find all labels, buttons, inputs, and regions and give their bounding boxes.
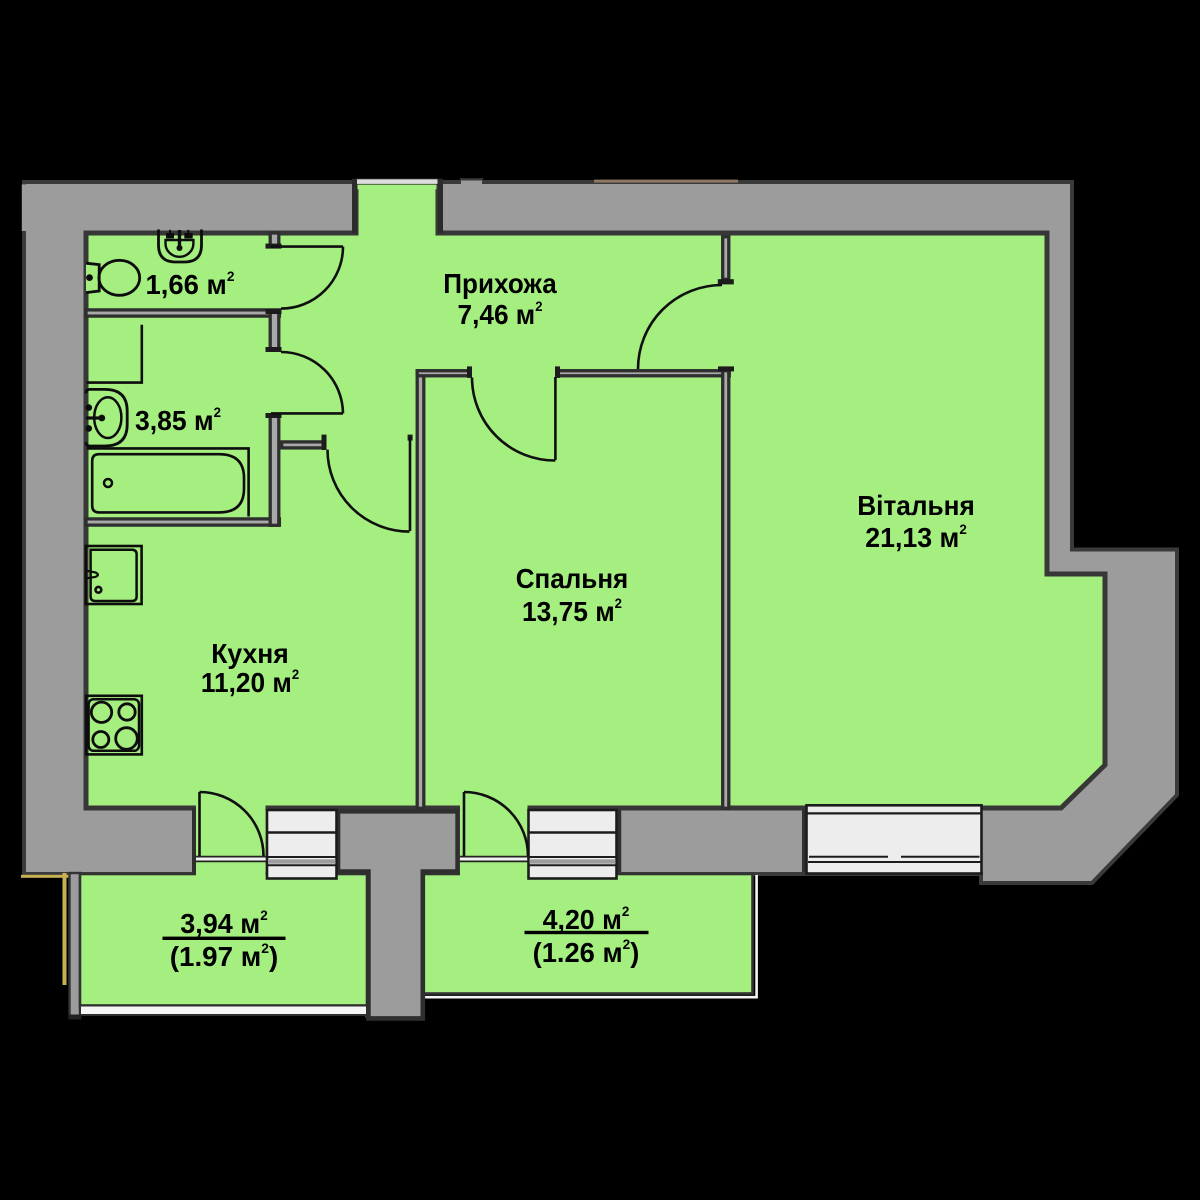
svg-text:Кухня: Кухня [211,638,289,669]
svg-text:4,20 м2: 4,20 м2 [543,903,630,935]
svg-text:Прихожа: Прихожа [443,268,557,299]
svg-text:Вітальня: Вітальня [857,490,975,521]
svg-text:13,75 м2: 13,75 м2 [522,595,622,627]
svg-text:Спальня: Спальня [516,563,629,594]
svg-text:1,66 м2: 1,66 м2 [146,268,235,300]
svg-text:7,46 м2: 7,46 м2 [458,298,543,330]
svg-text:11,20 м2: 11,20 м2 [201,666,299,698]
svg-text:3,94 м2: 3,94 м2 [180,907,268,939]
svg-text:21,13 м2: 21,13 м2 [865,521,967,553]
svg-text:3,85 м2: 3,85 м2 [135,404,221,436]
